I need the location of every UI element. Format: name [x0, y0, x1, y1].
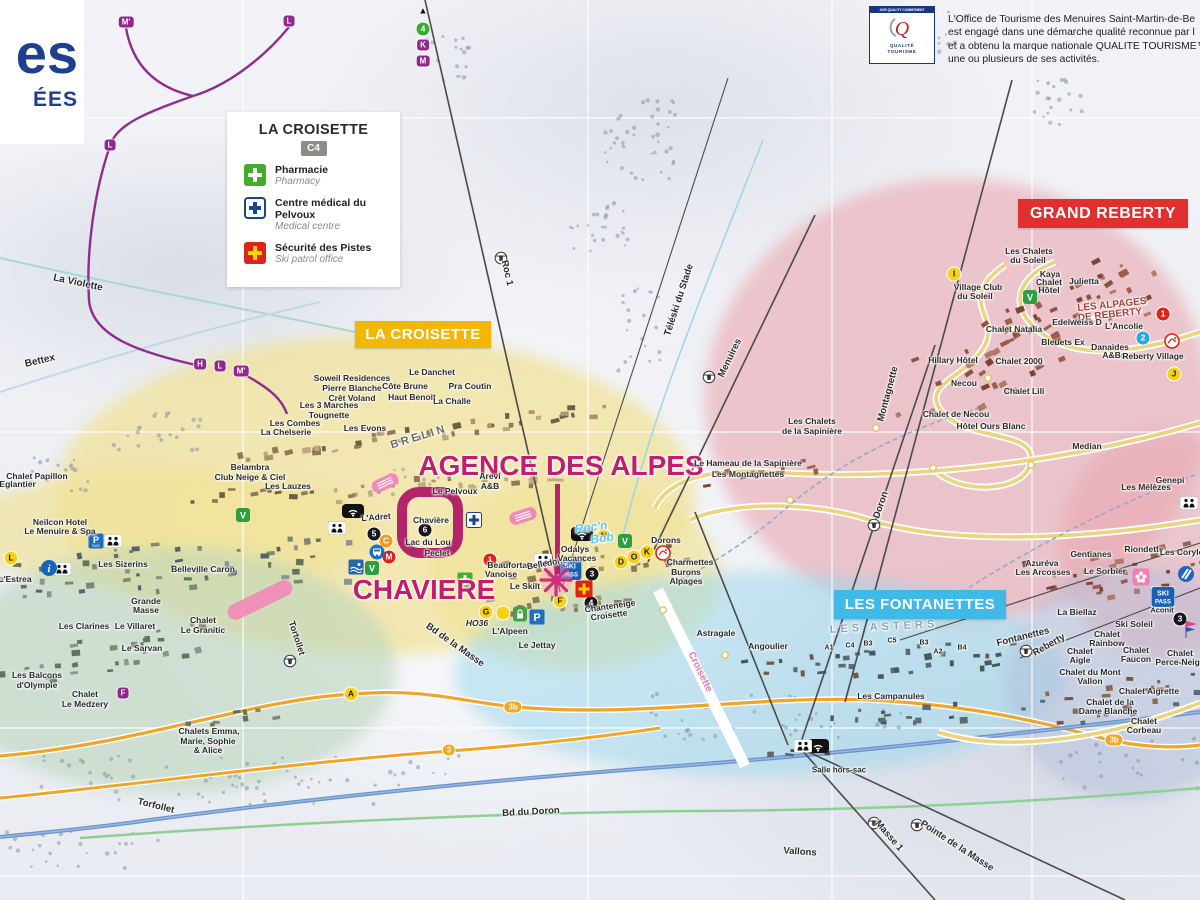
gondola-lift-icon [868, 816, 881, 830]
map-label: C5 [888, 638, 897, 645]
map-label: Chalet 2000 [995, 356, 1042, 366]
map-label: Gentianes [1070, 549, 1111, 559]
map-label: Marie, Sophie [180, 736, 235, 746]
map-label: LES ALPAGES [1077, 296, 1147, 314]
zone-grand-reberty [705, 178, 1200, 623]
legend-grid-reference: C4 [301, 141, 327, 156]
map-label: Neilcon Hotel [33, 517, 87, 527]
map-label: B4 [958, 645, 967, 652]
map-label: Bleuets Ex [1041, 337, 1084, 347]
map-label: Les Combes [270, 418, 321, 428]
map-label: Pierre Blanche [322, 383, 382, 393]
quality-badge-brand: QUALITÉTOURISME [870, 43, 934, 55]
map-label: Menuires [716, 337, 744, 379]
map-label: Chalet [190, 615, 216, 625]
map-label: Les Clarines [59, 621, 110, 631]
map-label: & Alice [194, 745, 223, 755]
map-label: B3 [864, 641, 873, 648]
map-label: Necou [951, 378, 977, 388]
map-label: Les Evons [344, 423, 387, 433]
map-label: Dorons [651, 535, 681, 545]
ski-school-flag-icon [1184, 620, 1198, 638]
map-label: Montagnette [875, 365, 900, 422]
svg-text:BUS: BUS [92, 544, 100, 548]
svg-text:V: V [240, 511, 246, 521]
point-number-badge: 1 [484, 554, 497, 567]
map-label: Chalet de la [1086, 697, 1134, 707]
map-label: Croisette [686, 650, 715, 694]
wifi-icon [571, 527, 593, 541]
eco-label-icon: V [236, 508, 250, 522]
map-label: L'Estrea [0, 574, 32, 584]
eco-label-icon: V [618, 534, 632, 548]
parking-icon: P [530, 610, 545, 625]
ski-patrol-icon [576, 581, 593, 598]
map-label: Le Danchet [409, 367, 455, 377]
map-label: Tortollet [287, 620, 307, 657]
map-label: Grande [131, 596, 161, 606]
map-label: Ski Soleil [1115, 619, 1153, 629]
map-label: Danaides [1091, 342, 1129, 352]
map-label: Salle hors-sac [812, 766, 866, 775]
quality-q-logo: Q [870, 13, 934, 43]
map-label: de la Sapinière [782, 426, 842, 436]
road-number-badge: 3 [442, 744, 456, 757]
point-letter-badge: J [1168, 368, 1181, 381]
map-label: Odalys [561, 544, 589, 554]
map-label: Chalet [1036, 277, 1062, 287]
agence-des-alpes-callout: AGENCE DES ALPES [418, 450, 703, 482]
map-label: Reberty Village [1122, 351, 1183, 361]
map-label: Les Chalets [1005, 246, 1053, 256]
map-label: Belleville Caron [171, 564, 235, 574]
map-label: Les Chalets [788, 416, 836, 426]
map-label: Les Sizerins [98, 559, 148, 569]
medical-centre-icon [466, 512, 482, 528]
point-number-badge: 2 [1137, 332, 1150, 345]
svg-text:Q: Q [895, 18, 910, 40]
information-icon: i [41, 560, 57, 576]
forest-layer [0, 11, 1200, 870]
swimming-pool-icon [349, 560, 364, 575]
map-label: Le Sarvan [122, 643, 163, 653]
resort-logo: es ÉES [0, 0, 84, 144]
map-label: Chalet Papillon [6, 471, 67, 481]
map-label: Côte Brune [382, 381, 428, 391]
map-label: BRELIN [389, 423, 449, 452]
map-label: Vallons [783, 845, 817, 858]
map-label: Chalet Natalia [986, 324, 1042, 334]
map-label: Doron [871, 490, 891, 520]
legend-label-fr: Pharmacie [275, 164, 328, 176]
map-label: Perce-Neige [1155, 657, 1200, 667]
map-label: Chalets Emma, [179, 726, 240, 736]
map-label: LES ASTERS [829, 618, 938, 636]
spa-icon [1133, 569, 1150, 586]
gondola-lift-icon [911, 818, 924, 832]
ski-school-people-icon [1180, 497, 1198, 510]
legend-label-en: Medical centre [275, 221, 400, 233]
map-label: Riondette [1124, 544, 1163, 554]
map-label: Téléski du Stade [662, 263, 696, 338]
map-label: A&B [481, 481, 499, 491]
zone-grand-reberty-south [1060, 430, 1200, 660]
magic-carpet-icon [370, 471, 401, 495]
map-label: Julietta [1069, 276, 1099, 286]
map-label: La Biellaz [1057, 607, 1096, 617]
map-label: Corbeau [1127, 725, 1161, 735]
ice-rink-icon [655, 545, 671, 561]
map-label: du Soleil [957, 291, 992, 301]
zone-preyerand [0, 548, 395, 793]
map-label: Chalet [1123, 645, 1149, 655]
magic-carpet-icon [508, 505, 539, 526]
map-label: Faucon [1121, 654, 1151, 664]
lift-letter-badge: M' [119, 17, 134, 28]
map-label: Astragale [697, 628, 736, 638]
lift-letter-badge: L [215, 361, 226, 372]
map-label: Pointe de la Masse [918, 818, 995, 874]
logo-text-2: ÉES [0, 88, 78, 112]
legend-label-fr: Sécurité des Pistes [275, 242, 371, 254]
point-letter-badge [497, 607, 510, 620]
map-label: Median [1072, 441, 1101, 451]
map-grid [0, 0, 1200, 900]
map-label: Aigle [1070, 655, 1091, 665]
svg-text:P: P [533, 612, 540, 624]
map-label: Soweil Residences [314, 373, 391, 383]
zone-la-croisette [55, 335, 695, 655]
quality-text-line: et a obtenu la marque nationale QUALITE … [948, 40, 1200, 53]
map-label: Torfollet [137, 796, 176, 816]
map-label: Hôtel Ours Blanc [957, 421, 1026, 431]
map-label: Chalet [1094, 629, 1120, 639]
legend-item-ski-patrol: Sécurité des Pistes Ski patrol office [244, 242, 400, 266]
map-label: C4 [846, 643, 855, 650]
map-label: L'Alpeen [492, 626, 528, 636]
map-label: Le Medzery [62, 699, 108, 709]
gondola-lift-icon [1020, 644, 1033, 658]
map-label: Azuréva [1025, 558, 1058, 568]
map-label: Tougnette [309, 410, 349, 420]
map-label: Vallon [1077, 676, 1102, 686]
map-label: Bd du Doron [502, 805, 560, 819]
map-label: Bd de la Masse [424, 621, 487, 669]
lift-number-badge: 4 [417, 23, 430, 36]
point-number-badge: 1 [1157, 308, 1170, 321]
point-letter-badge: K [641, 546, 654, 559]
point-letter-badge: G [480, 606, 493, 619]
map-label: L'Eglantier [0, 479, 36, 489]
gondola-lift-icon [868, 518, 881, 532]
map-label: Club Neige & Ciel [215, 472, 286, 482]
qualite-tourisme-badge: OUR QUALITY COMMITMENT Q QUALITÉTOURISME [869, 6, 935, 64]
chaviere-callout: CHAVIERE [353, 574, 496, 606]
map-label: La Violette [52, 272, 104, 293]
point-letter-badge: A [345, 688, 358, 701]
agence-pointer-line [555, 484, 560, 574]
map-label: Hillary Hôtel [928, 355, 978, 365]
legend-label-en: Ski patrol office [275, 254, 371, 266]
road-number-badge: 3b [1104, 734, 1123, 747]
map-label: Le Villaret [115, 621, 155, 631]
point-number-badge: 3 [586, 568, 599, 581]
map-label: Crêt Voland [328, 393, 375, 403]
zone-badge-les-fontanettes: LES FONTANETTES [834, 590, 1006, 619]
map-label: Le Jettay [519, 640, 556, 650]
ice-rink-icon [1164, 333, 1180, 349]
lift-letter-badge: L [284, 16, 295, 27]
svg-text:V: V [622, 537, 628, 547]
quality-text-line: une ou plusieurs de ses activités. [948, 53, 1200, 66]
map-label: Pra Coutin [449, 381, 492, 391]
north-arrow-icon: ▲ [419, 7, 428, 16]
map-label: Genepi [1156, 475, 1185, 485]
road-number-badge: 3b [503, 701, 522, 714]
map-label: Chalet [1167, 648, 1193, 658]
map-label: Le Sorbier [1084, 566, 1126, 576]
sledge-run-icon [1178, 566, 1194, 582]
map-label: DE REBERTY [1077, 306, 1142, 324]
point-letter-badge: N [598, 530, 611, 543]
zone-badge-grand-reberty: GRAND REBERTY [1018, 199, 1188, 228]
map-label: Le Hameau de la Sapinière [694, 458, 802, 468]
map-label: B3 [920, 640, 929, 647]
map-label: Charmettes [667, 557, 714, 567]
pharmacy-cross-icon [244, 164, 266, 186]
map-label: Angoulier [748, 641, 788, 651]
map-label: Hôtel [1038, 285, 1059, 295]
map-label: du Soleil [1010, 255, 1045, 265]
map-label: Vanoise [485, 569, 517, 579]
map-label: Chalet Lili [1004, 386, 1045, 396]
map-graphics [0, 0, 1200, 900]
ski-school-people-icon [328, 522, 346, 535]
ski-school-people-icon [794, 740, 812, 753]
lift-letter-badge: F [118, 688, 129, 699]
map-label: Bettex [24, 352, 56, 370]
map-label: La Chelserie [261, 427, 312, 437]
legend-label-en: Pharmacy [275, 176, 328, 188]
preyerand-slope-band [225, 577, 295, 622]
map-label: Le Granitic [181, 625, 225, 635]
map-label: Alpages [669, 576, 702, 586]
pharmacy-icon [458, 573, 473, 588]
map-label: Le Skilt [510, 581, 540, 591]
quality-commitment-text: L'Office de Tourisme des Menuires Saint-… [948, 13, 1200, 67]
map-label: A1 [825, 645, 834, 652]
map-label: Chalet du Mont [1059, 667, 1120, 677]
point-letter-badge: I [948, 268, 961, 281]
map-label: Edelweiss D [1052, 317, 1102, 327]
map-label: Chalet [72, 689, 98, 699]
map-label: La Challe [433, 396, 471, 406]
map-label: Haut Benoit [388, 392, 436, 402]
medical-cross-icon [244, 197, 266, 219]
map-label: Chalet Aigrette [1119, 686, 1179, 696]
map-label: HO36 [466, 618, 488, 628]
lift-letter-badge: L [105, 140, 116, 151]
point-letter-badge: L [5, 552, 18, 565]
svg-text:V: V [369, 564, 375, 574]
map-label: Belambra [231, 462, 270, 472]
legend-label-fr: Centre médical du Pelvoux [275, 197, 400, 221]
map-label: Les Lauzes [265, 481, 311, 491]
pistes-and-roads [0, 140, 1200, 838]
svg-text:V: V [1027, 293, 1033, 303]
map-label: Les Mélèzes [1121, 482, 1171, 492]
map-label: L'Adret [361, 511, 391, 524]
point-letter-badge: D [615, 556, 628, 569]
map-label: Burons [671, 567, 701, 577]
map-label: A&Bs [1102, 350, 1125, 360]
map-label: Chalet [1067, 646, 1093, 656]
map-label: Les Arcosses [1016, 567, 1071, 577]
lift-letter-badge: M' [234, 366, 249, 377]
map-label: Masse [133, 605, 159, 615]
gondola-lift-icon [703, 370, 716, 384]
map-label: Les 3 Marches [300, 400, 359, 410]
map-legend: LA CROISETTE C4 Pharmacie Pharmacy Centr… [227, 112, 400, 287]
ski-patrol-cross-icon [244, 242, 266, 264]
chaviere-highlight-marker [397, 487, 463, 558]
wifi-icon [342, 504, 364, 518]
legend-item-medical: Centre médical du Pelvoux Medical centre [244, 197, 400, 233]
map-label: Les Montagnettes [712, 469, 784, 479]
svg-text:PASS: PASS [1155, 600, 1171, 606]
map-label: Les Balcons [12, 670, 62, 680]
lockers-icon [513, 607, 527, 622]
map-label: A2 [934, 649, 943, 656]
quality-text-line: L'Office de Tourisme des Menuires Saint-… [948, 13, 1200, 26]
map-label: Dame Blanche [1079, 706, 1138, 716]
map-label: d'Olympie [17, 680, 58, 690]
map-label: Les Coryles [1160, 547, 1200, 557]
zone-badge-la-croisette: LA CROISETTE [355, 321, 491, 348]
map-label: Croisette [590, 607, 628, 622]
map-label: Les Campanules [857, 691, 925, 701]
map-label: Village Club [954, 282, 1003, 292]
lift-letter-badge: M [417, 56, 430, 67]
ski-pass-office-icon: SKIPASS [1151, 587, 1175, 608]
map-label: Chalet [1131, 716, 1157, 726]
gondola-lift-icon [495, 251, 508, 265]
lift-letter-badge: H [194, 359, 206, 370]
map-label: Chalet de Necou [923, 409, 990, 419]
bus-parking-icon: PBUS [89, 534, 104, 549]
logo-text-1: es [0, 26, 78, 82]
ski-resort-map: LA CROISETTE GRAND REBERTY LES FONTANETT… [0, 0, 1200, 900]
quality-text-line: est engagé dans une démarche qualité rec… [948, 26, 1200, 39]
map-label: L'Ancolie [1105, 321, 1143, 331]
point-letter-badge: O [628, 551, 641, 564]
map-label: Le Menuire & Spa [24, 526, 95, 536]
eco-label-icon: V [1023, 290, 1037, 304]
lift-letter-badge: K [417, 40, 429, 51]
eco-label-icon: V [365, 561, 379, 575]
map-label: Reberty [1031, 631, 1067, 658]
legend-title: LA CROISETTE [227, 122, 400, 138]
buildings-layer [0, 257, 1200, 757]
gondola-lift-icon [284, 654, 297, 668]
map-label: Kaya [1040, 269, 1060, 279]
map-label: Arevi [479, 471, 500, 481]
map-label: Rainbow [1089, 638, 1124, 648]
bus-stop-icon [370, 545, 385, 560]
svg-text:SKI: SKI [1157, 591, 1169, 598]
ski-school-people-icon [104, 535, 122, 548]
legend-item-pharmacy: Pharmacie Pharmacy [244, 164, 400, 188]
point-number-badge: 4 [585, 597, 598, 610]
